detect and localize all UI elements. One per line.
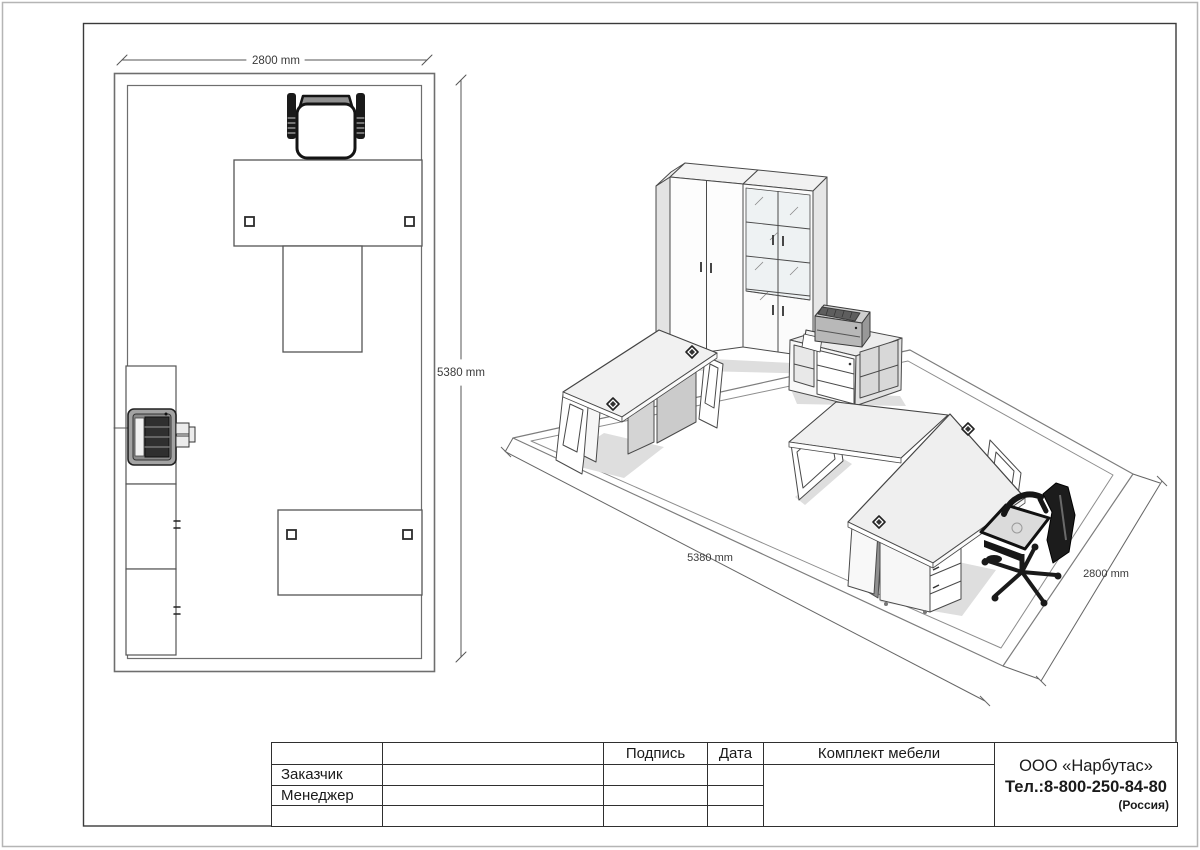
title-block-cell-blank	[271, 742, 383, 765]
customer-label-cell: Заказчик	[271, 764, 383, 786]
company-info-cell: ООО «Нарбутас» Тел.:8-800-250-84-80 (Рос…	[994, 742, 1178, 827]
glass-cabinet-3d	[743, 170, 827, 357]
plan-width-dimension: 2800 mm	[117, 55, 432, 67]
drawing-sheet: 2800 mm 5380 mm	[0, 0, 1200, 850]
drawing-canvas: 2800 mm 5380 mm	[0, 0, 1200, 850]
iso-width-label: 2800 mm	[1083, 568, 1129, 580]
manager-signature-cell	[603, 785, 708, 806]
manager-label-cell: Менеджер	[271, 785, 383, 806]
company-phone: Тел.:8-800-250-84-80	[1005, 777, 1167, 798]
project-notes-cell	[763, 764, 995, 827]
date-header-cell: Дата	[707, 742, 764, 765]
plan-length-dimension: 5380 mm	[437, 75, 485, 662]
plan-length-label: 5380 mm	[437, 367, 485, 379]
desk-top-view-2	[278, 510, 422, 595]
title-block-cell-blank	[603, 805, 708, 827]
iso-length-label: 5380 mm	[687, 552, 733, 564]
title-block-cell-blank	[382, 805, 604, 827]
plan-width-label: 2800 mm	[252, 55, 300, 67]
customer-signature-cell	[603, 764, 708, 786]
title-block-cell-blank	[707, 805, 764, 827]
project-title-cell: Комплект мебели	[763, 742, 995, 765]
chair-backrest	[1043, 483, 1075, 563]
manager-date-cell	[707, 785, 764, 806]
title-block: Подпись Дата Комплект мебели ООО «Нарбут…	[271, 742, 1178, 828]
manager-name-cell	[382, 785, 604, 806]
title-block-cell-blank	[382, 742, 604, 765]
signature-header-cell: Подпись	[603, 742, 708, 765]
title-block-cell-blank	[271, 805, 383, 827]
customer-date-cell	[707, 764, 764, 786]
company-name: ООО «Нарбутас»	[1019, 756, 1153, 777]
desk-return-top-view	[283, 246, 362, 352]
customer-name-cell	[382, 764, 604, 786]
floor-plan: 2800 mm 5380 mm	[114, 55, 485, 672]
iso-view: 5380 mm 2800 mm	[501, 163, 1167, 706]
company-country: (Россия)	[1118, 798, 1177, 813]
